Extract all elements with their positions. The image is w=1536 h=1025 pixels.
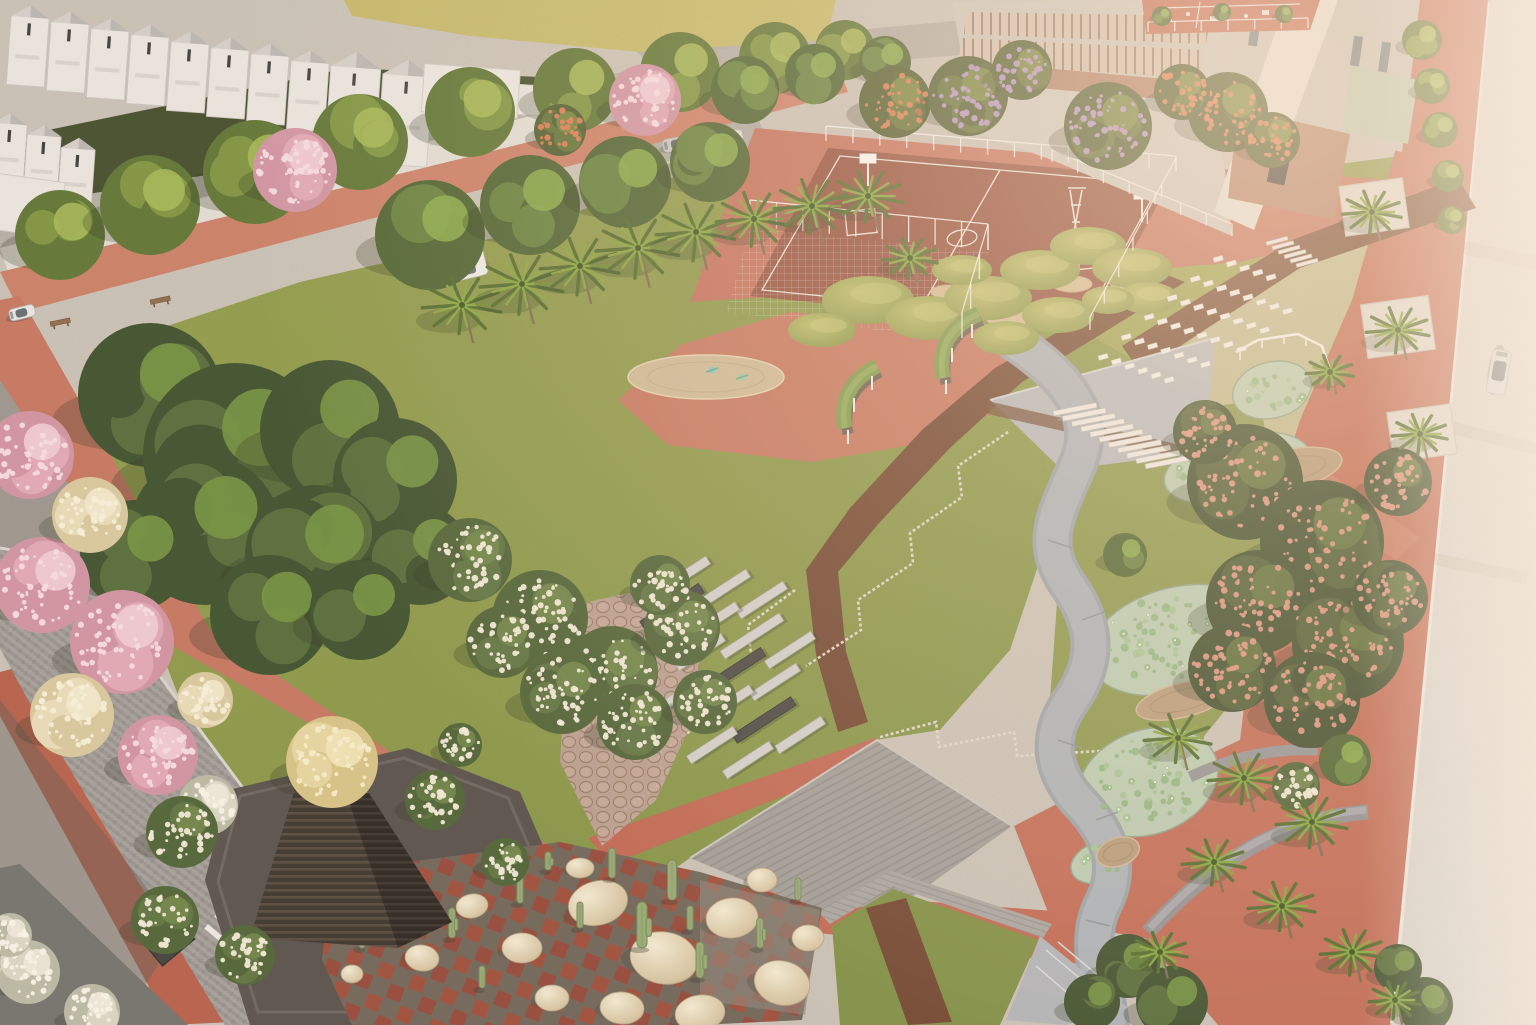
atmosphere (0, 0, 1536, 1025)
aerial-park-render: Sunlit aerial rendering of a landscaped … (0, 0, 1536, 1025)
render-canvas (0, 0, 1536, 1025)
